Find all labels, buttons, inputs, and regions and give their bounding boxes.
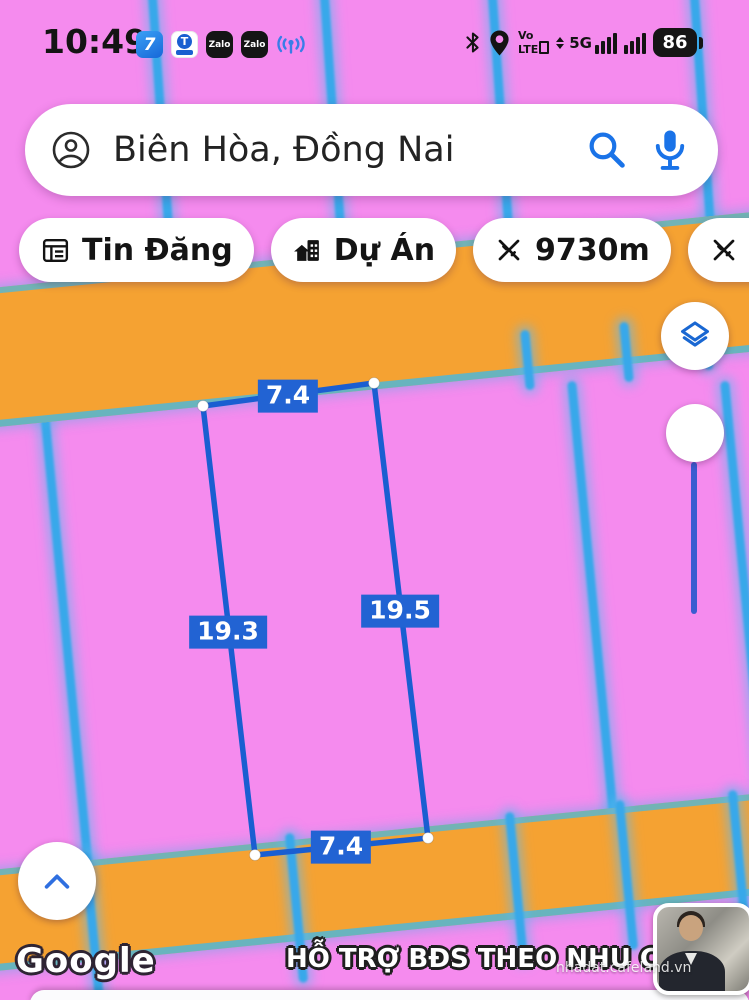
agent-photo-head [679,915,703,941]
measure-vertex[interactable] [198,401,209,412]
battery-nub [699,37,703,49]
chevron-up-icon [42,871,72,891]
measure-vertex[interactable] [423,833,434,844]
chip-distance-9730[interactable]: 9730m [473,218,671,282]
bluetooth-icon [464,29,481,56]
layers-button[interactable] [661,302,729,370]
battery-indicator: 86 [653,28,697,57]
measurement-label-right: 19.5 [361,595,439,628]
status-bar: 10:49 7 T Zalo Zalo [0,0,749,80]
measure-icon [494,235,524,265]
t-banner [176,50,193,55]
search-input[interactable]: Biên Hòa, Đồng Nai [113,130,586,170]
t-badge: T [177,34,192,49]
search-bar[interactable]: Biên Hòa, Đồng Nai [25,104,718,196]
google-logo: Google [16,941,156,981]
sim1-signal: 5G [556,32,617,54]
clock: 10:49 [42,22,147,61]
agent-photo [653,903,749,995]
promo-banner-text: HỖ TRỢ BĐS THEO NHU CẦU [286,944,700,974]
sim2-signal-bars-icon [624,32,646,54]
filter-chips-row: Tin Đăng Dự Án 9730m [19,218,749,282]
measurement-label-bottom: 7.4 [311,831,371,864]
data-arrows-icon [556,37,564,49]
zoom-slider-track[interactable] [691,462,697,614]
notification-icons: 7 T Zalo Zalo [136,31,306,58]
volte-box-glyph [539,41,549,54]
zalo-notification-icon: Zalo [241,31,268,58]
mic-icon[interactable] [650,128,690,172]
project-icon [292,235,323,266]
measure-vertex[interactable] [250,850,261,861]
chip-du-an[interactable]: Dự Án [271,218,456,282]
app-notification-icon: 7 [136,31,163,58]
chip-label: 9730m [535,233,650,268]
chip-distance-5000[interactable]: 5000m [688,218,749,282]
scroll-top-button[interactable] [18,842,96,920]
app-screen: 7.4 19.3 19.5 7.4 10:49 7 T Zalo Zalo [0,0,749,1000]
location-pin-icon [488,29,511,57]
chip-tin-dang[interactable]: Tin Đăng [19,218,254,282]
measure-vertex[interactable] [369,378,380,389]
listing-icon [40,235,71,266]
network-type: 5G [569,34,592,52]
status-indicators: Vo LTE 5G 86 [464,28,703,57]
hotspot-icon [276,31,306,58]
layers-icon [678,319,712,353]
bottom-sheet-edge[interactable] [30,990,749,1000]
chip-label: Dự Án [334,233,435,268]
t-app-notification-icon: T [171,31,198,58]
measurement-label-top: 7.4 [258,380,318,413]
signal-bars-icon [595,32,617,54]
search-icon[interactable] [586,129,628,171]
zoom-slider-knob[interactable] [666,404,724,462]
chip-label: Tin Đăng [82,233,233,268]
volte-indicator: Vo LTE [518,30,549,55]
zalo-notification-icon: Zalo [206,31,233,58]
account-icon[interactable] [51,130,91,170]
measurement-label-left: 19.3 [189,616,267,649]
measure-icon [709,235,739,265]
